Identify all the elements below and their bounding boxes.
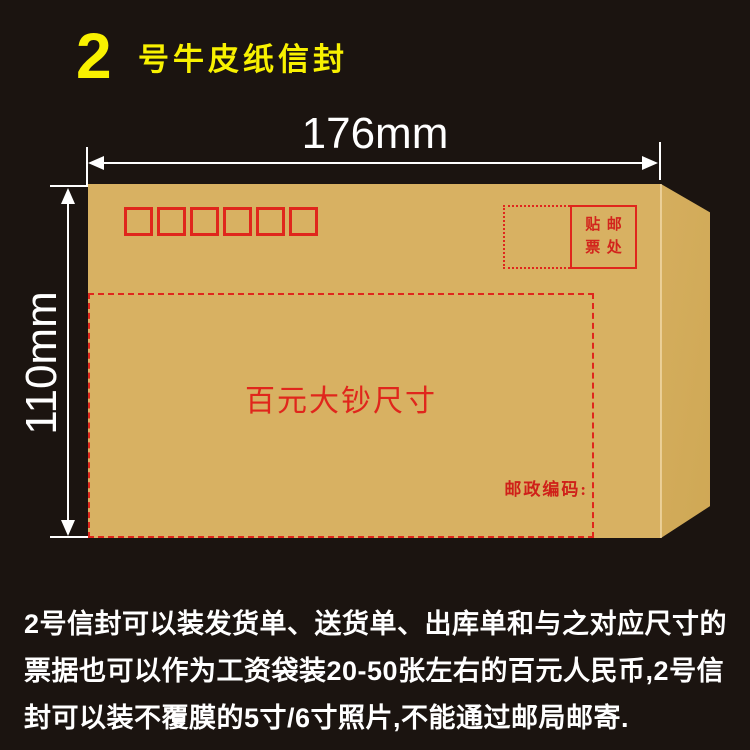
stamp-char: 邮 xyxy=(607,218,622,233)
height-dimension-tick-top xyxy=(50,185,88,187)
product-description: 2号信封可以装发货单、送货单、出库单和与之对应尺寸的 票据也可以作为工资袋装20… xyxy=(24,601,736,742)
postcode-label: 邮政编码: xyxy=(504,481,588,498)
postal-code-box xyxy=(157,207,186,236)
bill-size-dashed-outline: 百元大钞尺寸 邮政编码: xyxy=(88,293,594,538)
stamp-char: 票 xyxy=(585,241,600,256)
envelope-side-flap xyxy=(661,184,710,538)
stamp-char: 贴 xyxy=(585,218,600,233)
postal-code-box xyxy=(223,207,252,236)
width-dimension-tick-left xyxy=(86,147,88,187)
description-line: 2号信封可以装发货单、送货单、出库单和与之对应尺寸的 xyxy=(24,601,736,648)
page-title: 号牛皮纸信封 xyxy=(138,44,348,75)
product-image: 2 号牛皮纸信封 176mm 110mm 贴 邮 票 处 xyxy=(0,0,750,750)
postal-code-box xyxy=(190,207,219,236)
postal-code-box xyxy=(124,207,153,236)
stamp-placement-dotted-box xyxy=(503,205,570,269)
bill-size-label: 百元大钞尺寸 xyxy=(90,387,592,417)
height-dimension-tick-bottom xyxy=(50,536,88,538)
arrow-down-icon xyxy=(61,520,75,536)
width-dimension-tick-right xyxy=(659,142,661,180)
width-dimension-label: 176mm xyxy=(195,112,555,156)
arrow-up-icon xyxy=(61,188,75,204)
height-dimension-line xyxy=(67,200,69,524)
envelope-fold-line xyxy=(660,184,662,538)
height-dimension-label: 110mm xyxy=(19,281,65,445)
description-line: 票据也可以作为工资袋装20-50张左右的百元人民币,2号信 xyxy=(24,648,736,695)
description-line: 封可以装不覆膜的5寸/6寸照片,不能通过邮局邮寄. xyxy=(24,695,736,742)
postal-code-box xyxy=(289,207,318,236)
envelope-size-number: 2 xyxy=(76,24,112,88)
arrow-left-icon xyxy=(88,156,104,170)
envelope-illustration: 贴 邮 票 处 百元大钞尺寸 邮政编码: xyxy=(88,184,710,538)
postal-code-boxes xyxy=(124,207,318,236)
stamp-label-box: 贴 邮 票 处 xyxy=(570,205,637,269)
postal-code-box xyxy=(256,207,285,236)
stamp-char: 处 xyxy=(607,241,622,256)
arrow-right-icon xyxy=(642,156,658,170)
width-dimension-line xyxy=(100,162,646,164)
